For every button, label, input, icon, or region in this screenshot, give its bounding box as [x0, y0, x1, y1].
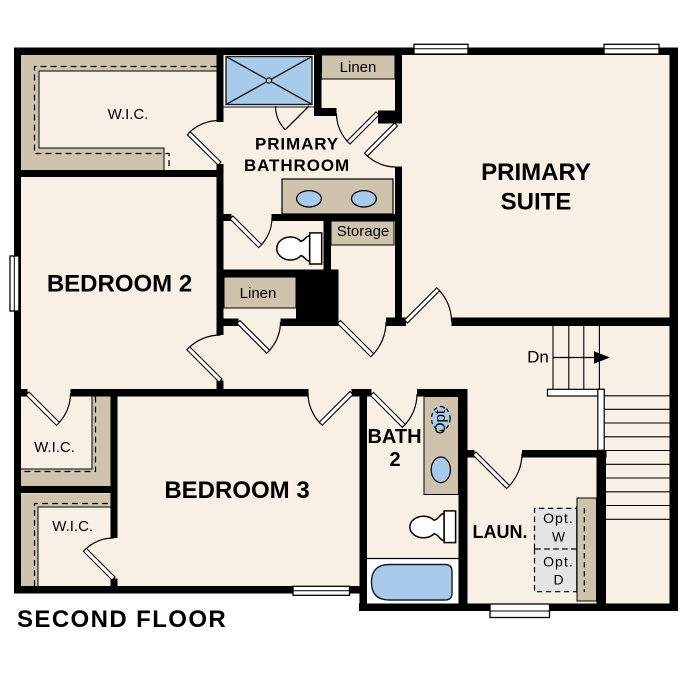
- svg-text:BATHROOM: BATHROOM: [244, 156, 350, 175]
- svg-text:PRIMARY: PRIMARY: [255, 135, 339, 154]
- svg-text:Linen: Linen: [340, 59, 377, 76]
- svg-text:Storage: Storage: [337, 223, 390, 240]
- svg-text:Opt.: Opt.: [543, 510, 574, 526]
- svg-text:W.I.C.: W.I.C.: [108, 106, 149, 123]
- svg-text:BEDROOM 3: BEDROOM 3: [164, 477, 309, 504]
- svg-text:2: 2: [389, 449, 400, 471]
- svg-text:SECOND FLOOR: SECOND FLOOR: [17, 606, 227, 633]
- svg-text:Opt.: Opt.: [432, 406, 449, 434]
- svg-text:BEDROOM 2: BEDROOM 2: [47, 270, 192, 297]
- svg-text:Linen: Linen: [240, 285, 277, 302]
- svg-text:Dn: Dn: [527, 348, 549, 367]
- svg-text:D: D: [553, 572, 563, 588]
- svg-text:BATH: BATH: [367, 426, 421, 448]
- svg-text:W.I.C.: W.I.C.: [52, 518, 93, 535]
- svg-text:Opt.: Opt.: [543, 554, 574, 570]
- svg-text:W.I.C.: W.I.C.: [34, 439, 75, 456]
- svg-text:W: W: [552, 529, 566, 545]
- svg-text:PRIMARY: PRIMARY: [481, 159, 591, 186]
- svg-text:SUITE: SUITE: [501, 189, 572, 216]
- svg-text:LAUN.: LAUN.: [473, 522, 528, 542]
